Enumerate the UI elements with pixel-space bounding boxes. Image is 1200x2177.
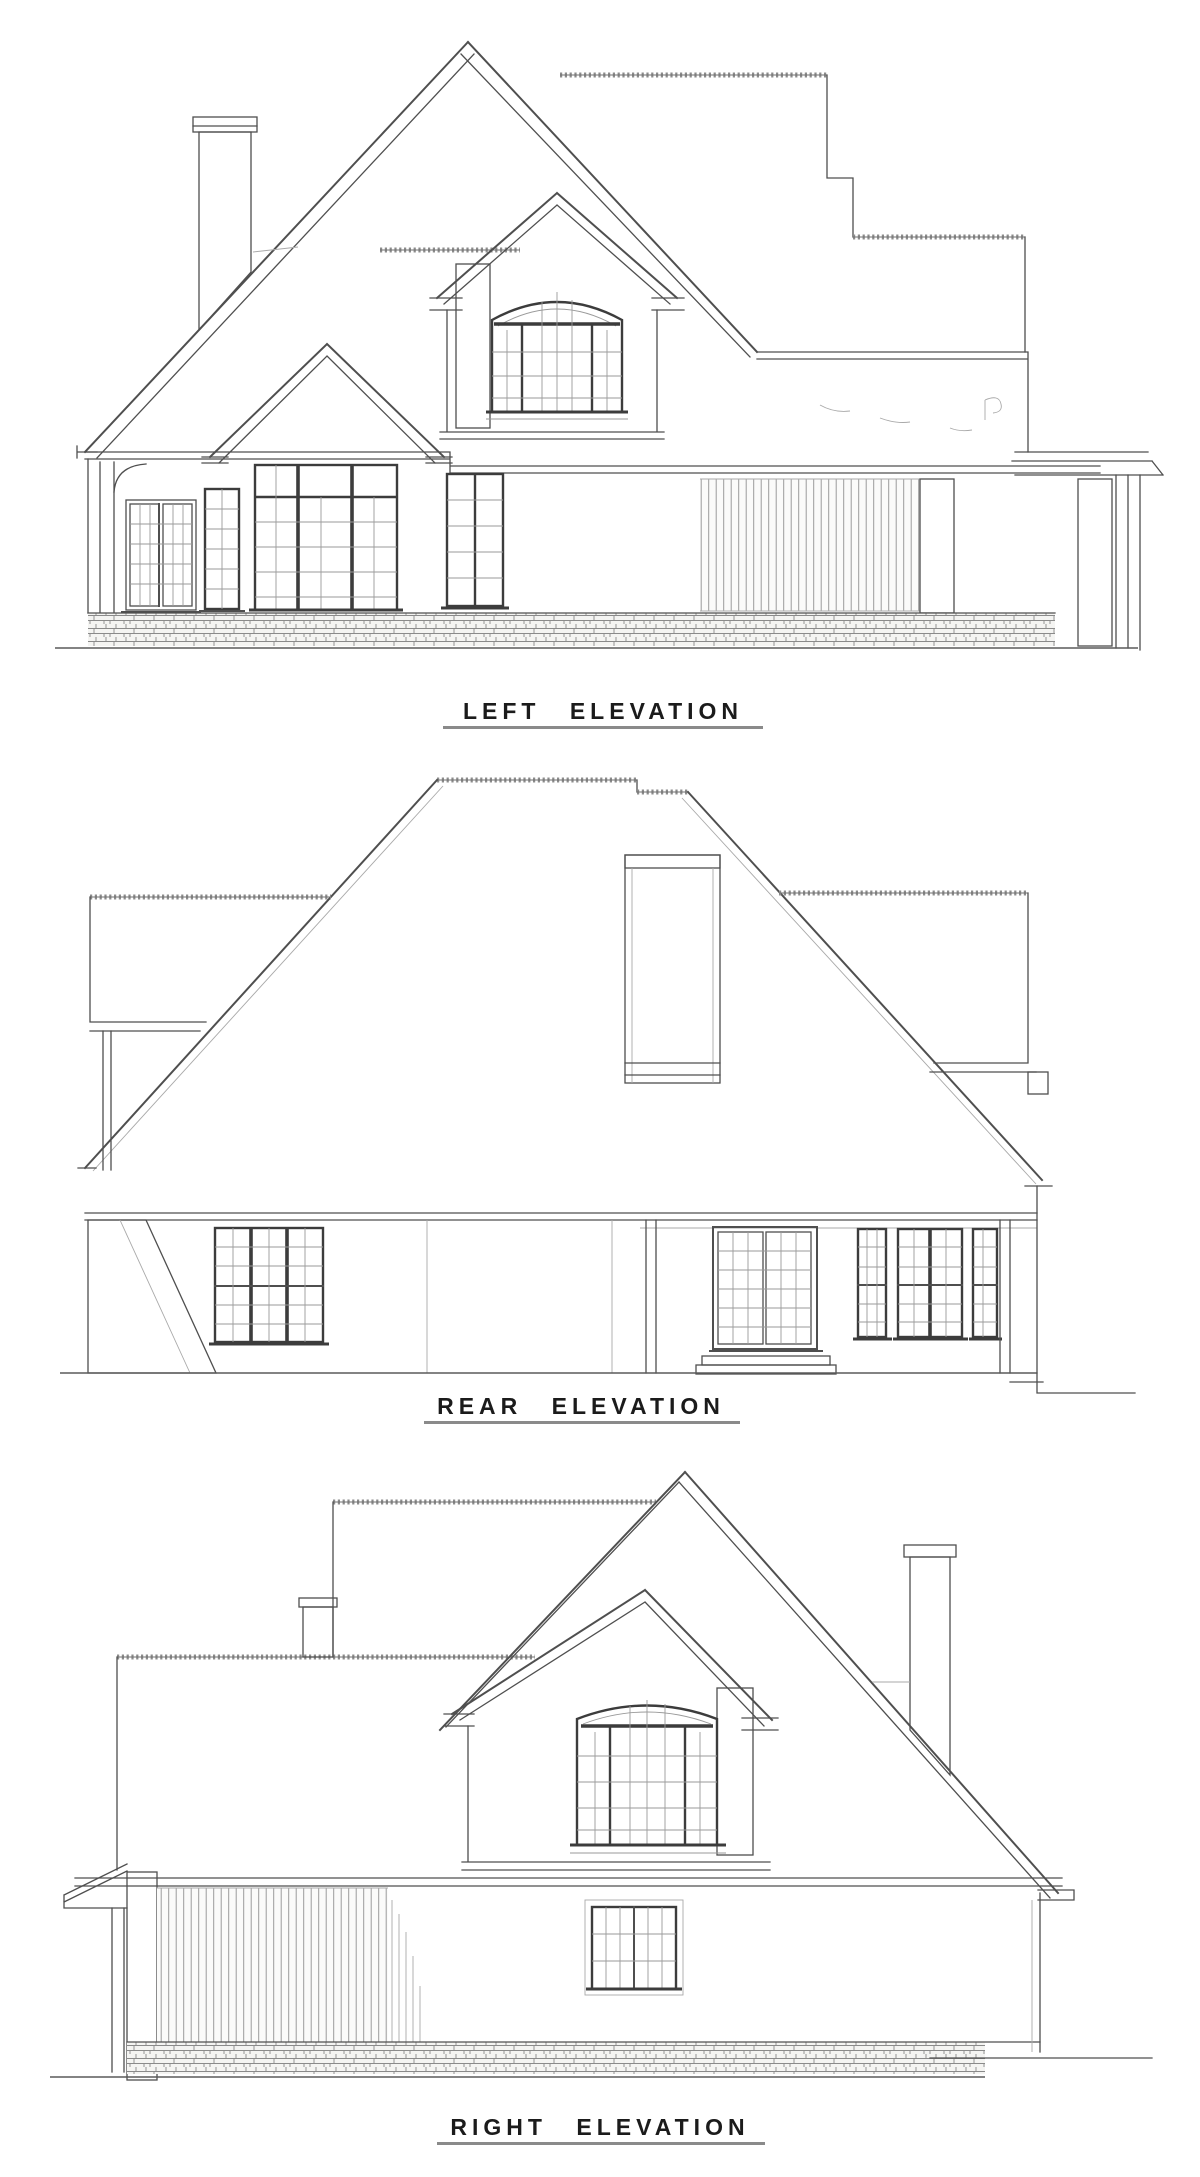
arched-window	[570, 1700, 726, 1853]
right-wing-roof	[757, 352, 1163, 475]
right-wing-roof	[779, 893, 1048, 1094]
right-elevation-label: RIGHT ELEVATION	[450, 2114, 749, 2140]
bay-gable	[202, 344, 452, 463]
stone-chimney	[872, 1545, 956, 1775]
rear-elevation-drawing: REAR ELEVATION	[60, 780, 1135, 1424]
vertical-siding	[157, 1888, 420, 2042]
right-elevation-underline	[437, 2142, 765, 2145]
door-steps	[702, 1356, 830, 1365]
stone-quoins	[717, 1688, 753, 1855]
french-doors	[122, 500, 200, 612]
attic-shaft	[625, 855, 720, 1083]
ridge-lines	[117, 1502, 656, 1870]
main-gable-roof	[440, 1472, 1074, 1900]
rear-elevation-label: REAR ELEVATION	[437, 1393, 725, 1419]
porch	[100, 462, 244, 612]
right-elevation-drawing: RIGHT ELEVATION	[50, 1472, 1152, 2145]
dormer-gable	[380, 193, 684, 439]
eave-lines	[85, 1213, 1037, 1228]
triple-window	[209, 1228, 329, 1344]
left-elevation-drawing: LEFT ELEVATION	[55, 42, 1163, 729]
left-elevation-label: LEFT ELEVATION	[463, 698, 743, 724]
corner-window	[441, 474, 509, 608]
bay-triple-window	[249, 465, 403, 610]
left-elevation-underline	[443, 726, 763, 729]
elevation-sheet: LEFT ELEVATION	[0, 0, 1200, 2177]
porch-window	[200, 489, 244, 611]
arched-window	[486, 292, 628, 419]
hip-roof	[78, 780, 1052, 1186]
small-window	[585, 1900, 683, 1995]
elevations-drawing: LEFT ELEVATION	[0, 0, 1200, 2177]
dormer-gable	[444, 1590, 778, 1870]
roof-vent-pipe	[299, 1598, 337, 1657]
window-group-right	[853, 1229, 1002, 1339]
french-doors	[696, 1227, 836, 1374]
rear-elevation-underline	[424, 1421, 740, 1424]
eave-lines	[75, 1878, 1062, 1886]
foundation	[55, 613, 1138, 648]
chimney-base	[88, 1220, 216, 1373]
ridge-lines	[560, 75, 1025, 352]
